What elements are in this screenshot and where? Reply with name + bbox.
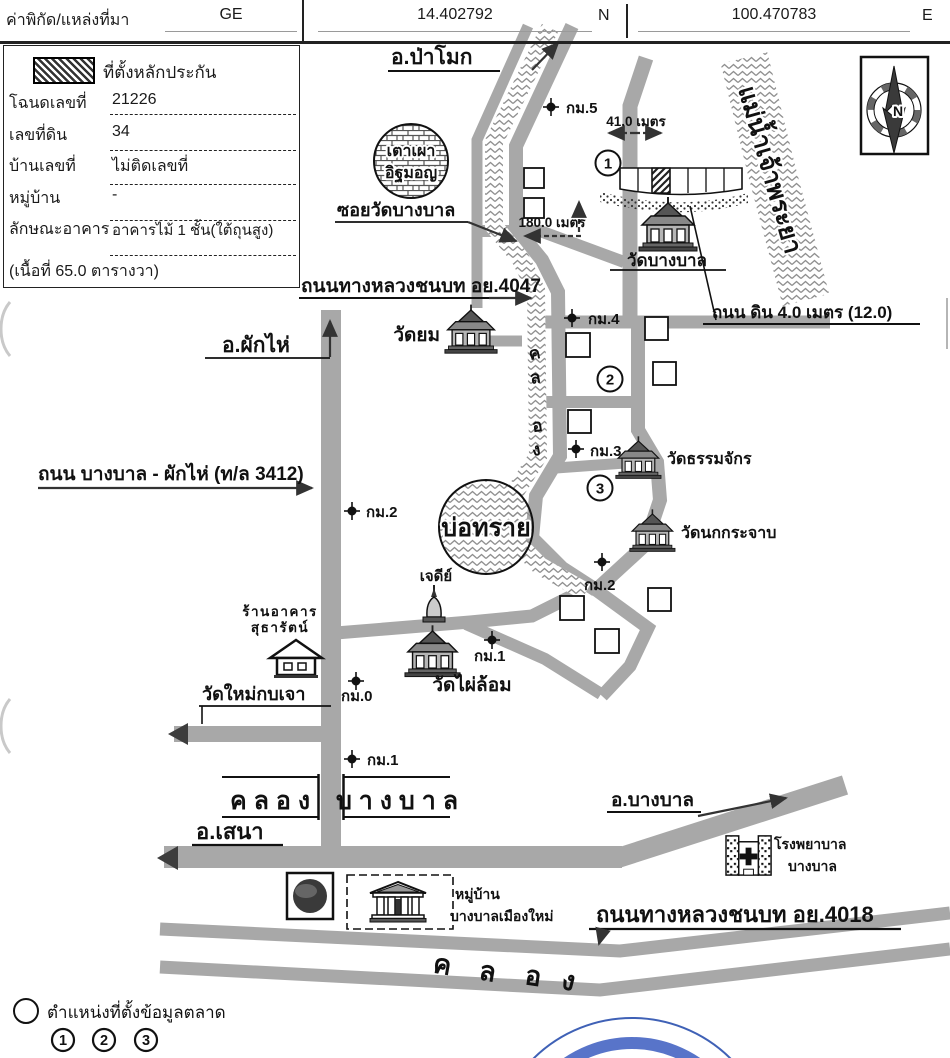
wat-phai-lom-label: วัดไผ่ล้อม xyxy=(432,673,511,696)
round-seal xyxy=(287,873,333,919)
road-wat-phai-lom xyxy=(336,591,582,633)
footer-number-2: 2 xyxy=(100,1033,108,1049)
building-type-value: อาคารไม้ 1 ชั้น(ใต้ถุนสูง) xyxy=(112,218,273,242)
collateral-location-swatch xyxy=(33,57,95,84)
site-2: 2 xyxy=(606,372,614,389)
chedi: เจดีย์ xyxy=(420,567,452,622)
header-divider xyxy=(626,4,628,38)
village-value: - xyxy=(112,186,117,204)
km1-south-label: กม.1 xyxy=(367,752,398,769)
hospital-icon xyxy=(726,836,771,875)
bang-ban-hospital: โรงพยาบาล บางบาล xyxy=(726,835,847,875)
brick-kiln: เตาเผา อิฐมอญ xyxy=(374,124,448,198)
site-1: 1 xyxy=(604,156,612,173)
wat-yom: วัดยม xyxy=(393,305,497,354)
wat-nok-krachap-label: วัดนกกระจาบ xyxy=(681,524,776,542)
header-lat-hemisphere: N xyxy=(598,7,610,25)
route3412-label: ถนน บางบาล - ผักไห่ (ท/ล 3412) xyxy=(38,462,304,485)
hwy4018-label: ถนนทางหลวงชนบท อย.4018 xyxy=(596,902,874,927)
header-title: ค่าพิกัด/แหล่งที่มา xyxy=(6,8,129,33)
village-bang-ban-mueang-mai: หมู่บ้าน บางบาลเมืองใหม่ xyxy=(347,875,553,929)
wat-nok-krachap: วัดนกกระจาบ xyxy=(630,509,777,551)
wat-thammachak: วัดธรรมจักร xyxy=(616,436,752,478)
divider xyxy=(110,255,296,256)
km2-west-label: กม.2 xyxy=(366,504,397,521)
wat-thammachak-label: วัดธรรมจักร xyxy=(667,450,752,468)
soi-label: ซอยวัดบางบาล xyxy=(337,200,455,220)
chedi-label: เจดีย์ xyxy=(420,567,452,585)
coordinate-header: ค่าพิกัด/แหล่งที่มา GE 14.402792 N 100.4… xyxy=(0,0,950,43)
compass-n-label: N xyxy=(893,103,903,119)
property-info-box: ที่ตั้งหลักประกัน โฉนดเลขที่ 21226 เลขที… xyxy=(3,45,300,288)
header-latitude: 14.402792 xyxy=(318,6,592,24)
km2-east-label: กม.2 xyxy=(584,577,615,594)
khlong-label-right: บ า ง บ า ล xyxy=(336,787,458,815)
house-number-value: ไม่ติดเลขที่ xyxy=(112,154,188,179)
hwy4047-label: ถนนทางหลวงชนบท อย.4047 xyxy=(301,276,541,297)
dirt-road-label: ถนน ดิน 4.0 เมตร (12.0) xyxy=(712,303,892,322)
area-note: (เนื้อที่ 65.0 ตารางวา) xyxy=(9,259,159,284)
bang-ban-label: อ.บางบาล xyxy=(611,790,694,811)
hospital-label-1: โรงพยาบาล xyxy=(773,835,847,852)
sand-pit: บ่อทราย xyxy=(439,480,533,574)
km4-label: กม.4 xyxy=(588,311,620,328)
village-label: หมู่บ้าน xyxy=(9,186,60,211)
blue-stamp xyxy=(492,1018,772,1058)
deed-number-value: 21226 xyxy=(112,91,157,109)
market-position-circle xyxy=(14,999,38,1023)
kiln-label-2: อิฐมอญ xyxy=(384,164,437,183)
road-lower-canal-bank xyxy=(160,949,950,990)
divider xyxy=(110,184,296,185)
shop-sutharat: ร้านอาคาร สุธารัตน์ xyxy=(242,604,322,678)
scanned-location-map-page: แม่น้ำเจ้าพระยา เตาเผา อิฐมอญ บ่อทราย วั… xyxy=(0,0,950,1058)
subject-parcel-hatched xyxy=(652,168,670,193)
km1-mid-label: กม.1 xyxy=(474,648,505,665)
house-number-label: บ้านเลขที่ xyxy=(9,154,76,179)
footer-number-3: 3 xyxy=(142,1033,150,1049)
market-position-label: ตำแหน่งที่ตั้งข้อมูลตลาด xyxy=(47,1000,226,1023)
site-3: 3 xyxy=(596,481,604,498)
hospital-label-2: บางบาล xyxy=(788,858,837,874)
km3-label: กม.3 xyxy=(590,443,621,460)
km0-label: กม.0 xyxy=(341,688,372,705)
footer-legend: ตำแหน่งที่ตั้งข้อมูลตลาด 1 2 3 xyxy=(14,999,226,1051)
header-lng-hemisphere: E xyxy=(922,7,933,25)
stupa-icon xyxy=(423,585,445,622)
khlong-label-left: ค ล อ ง xyxy=(230,787,310,815)
swatch-label: ที่ตั้งหลักประกัน xyxy=(103,59,216,86)
compass-rose: N xyxy=(861,57,928,154)
temple-icon xyxy=(445,305,497,354)
header-longitude: 100.470783 xyxy=(638,6,910,24)
dist180-label: 180.0 เมตร xyxy=(518,215,586,230)
header-source: GE xyxy=(165,6,297,24)
divider xyxy=(110,114,296,115)
sena-label: อ.เสนา xyxy=(196,819,264,844)
kiln-label-1: เตาเผา xyxy=(387,143,436,160)
temple-icon xyxy=(616,436,661,478)
sand-pit-label: บ่อทราย xyxy=(441,514,530,542)
deed-number-label: โฉนดเลขที่ xyxy=(9,91,87,116)
shop-label-1: ร้านอาคาร xyxy=(242,604,318,619)
dist41-label: 41.0 เมตร xyxy=(606,114,666,129)
underline xyxy=(638,31,910,32)
village-label-1: หมู่บ้าน xyxy=(455,886,500,903)
parcel-number-value: 34 xyxy=(112,123,130,141)
chao-phraya-river: แม่น้ำเจ้าพระยา xyxy=(732,58,812,300)
phak-hai-label: อ.ผักไห่ xyxy=(222,332,290,357)
header-divider xyxy=(302,0,304,42)
building-type-label: ลักษณะอาคาร xyxy=(9,217,109,242)
km5-label: กม.5 xyxy=(566,100,597,117)
pa-mok-label: อ.ป่าโมก xyxy=(391,44,472,69)
hwy4018-arrow xyxy=(599,929,603,944)
parcel-number-label: เลขที่ดิน xyxy=(9,123,67,148)
wat-bang-ban-label: วัดบางบาล xyxy=(627,251,707,270)
underline xyxy=(318,31,592,32)
temple-icon xyxy=(630,509,675,551)
village-label-2: บางบาลเมืองใหม่ xyxy=(450,907,553,924)
header-bottom-rule xyxy=(0,41,950,44)
footer-number-1: 1 xyxy=(59,1033,67,1049)
underline xyxy=(165,31,297,32)
shop-label-2: สุธารัตน์ xyxy=(251,619,309,636)
wat-yom-label: วัดยม xyxy=(393,325,440,346)
wat-mai-label: วัดใหม่กบเจา xyxy=(202,683,305,704)
divider xyxy=(110,150,296,151)
house-icon xyxy=(270,640,322,678)
